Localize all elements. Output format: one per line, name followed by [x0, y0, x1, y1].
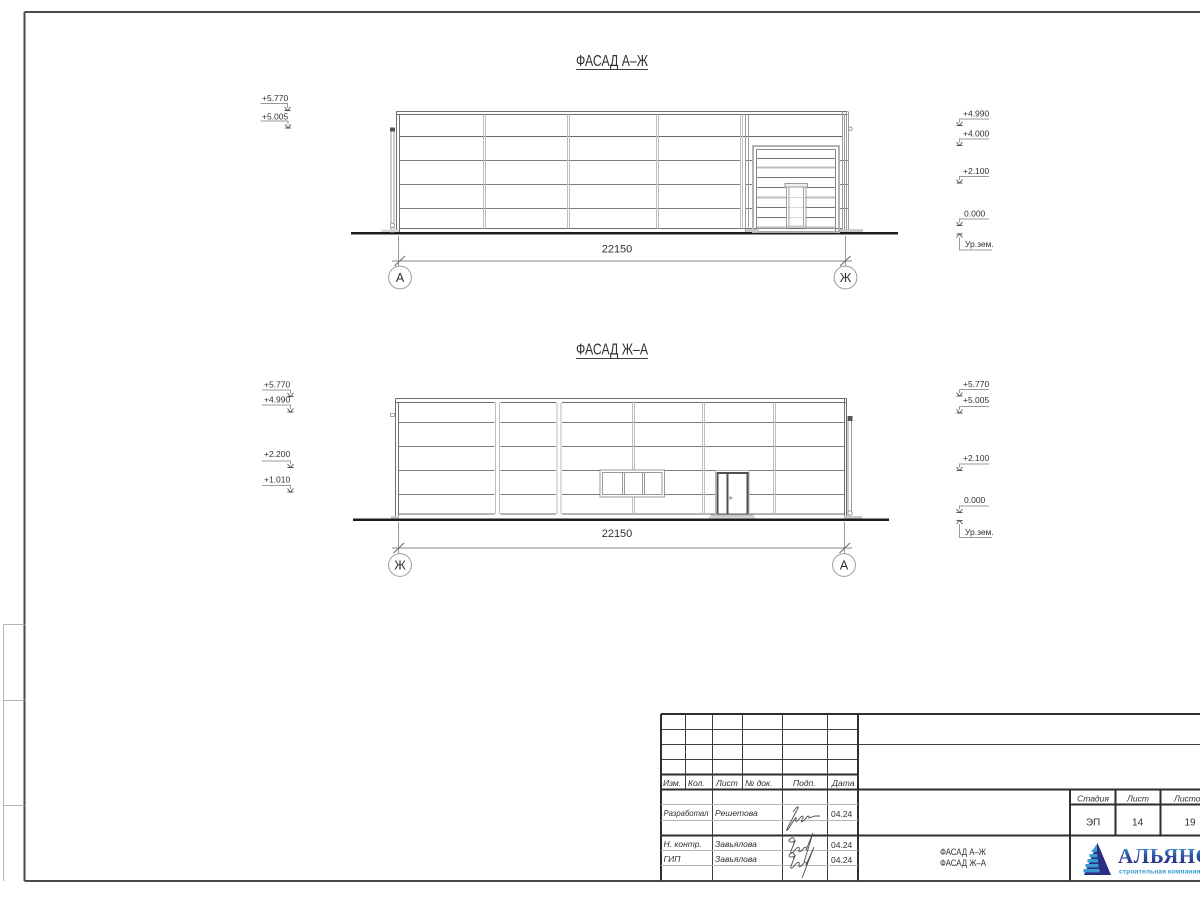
svg-text:+2.100: +2.100 [963, 453, 990, 463]
svg-text:04.24: 04.24 [831, 840, 853, 850]
svg-text:Ж: Ж [840, 271, 852, 285]
svg-text:Подп.: Подп. [793, 778, 816, 788]
svg-text:Решетова: Решетова [715, 808, 758, 818]
svg-text:АЛЬЯНС: АЛЬЯНС [1118, 844, 1200, 868]
svg-text:ГИП: ГИП [664, 854, 682, 864]
svg-text:Ур.зем.: Ур.зем. [965, 239, 994, 249]
svg-text:+5.770: +5.770 [963, 379, 990, 389]
svg-text:ФАСАД Ж–А: ФАСАД Ж–А [940, 858, 987, 869]
svg-text:Лист: Лист [715, 778, 738, 788]
svg-text:+5.005: +5.005 [963, 395, 990, 405]
svg-text:+4.990: +4.990 [264, 395, 291, 405]
svg-text:Дата: Дата [831, 778, 855, 788]
svg-text:Изм.: Изм. [663, 778, 681, 788]
svg-text:ФАСАД А–Ж: ФАСАД А–Ж [576, 53, 648, 70]
svg-text:ЭП: ЭП [1086, 818, 1100, 829]
svg-text:22150: 22150 [602, 244, 633, 256]
svg-text:+2.100: +2.100 [963, 166, 990, 176]
svg-text:А: А [840, 559, 849, 573]
svg-text:ФАСАД Ж–А: ФАСАД Ж–А [576, 342, 648, 359]
svg-text:+5.005: +5.005 [262, 112, 289, 122]
svg-text:№ док.: № док. [745, 778, 772, 788]
svg-text:Лист: Лист [1126, 794, 1149, 804]
svg-text:Н. контр.: Н. контр. [664, 839, 702, 849]
svg-text:Разработал: Разработал [664, 808, 709, 818]
svg-text:04.24: 04.24 [831, 855, 853, 865]
svg-text:Завьялова: Завьялова [715, 854, 757, 864]
svg-text:14: 14 [1132, 818, 1144, 829]
svg-text:Кол.: Кол. [688, 778, 705, 788]
svg-text:0.000: 0.000 [964, 209, 986, 219]
svg-text:+4.000: +4.000 [963, 129, 990, 139]
svg-text:Листов: Листов [1173, 794, 1200, 804]
svg-text:А: А [396, 271, 405, 285]
svg-text:строительная компания: строительная компания [1119, 869, 1200, 876]
svg-text:+2.200: +2.200 [264, 449, 291, 459]
svg-text:0.000: 0.000 [964, 495, 986, 505]
svg-text:Ж: Ж [394, 559, 406, 573]
svg-text:04.24: 04.24 [831, 809, 853, 819]
svg-text:Завьялова: Завьялова [715, 839, 757, 849]
svg-text:19: 19 [1184, 818, 1196, 829]
svg-text:+5.770: +5.770 [262, 93, 289, 103]
svg-text:22150: 22150 [602, 528, 633, 540]
svg-text:+4.990: +4.990 [963, 109, 990, 119]
svg-text:+1.010: +1.010 [264, 475, 291, 485]
svg-text:Ур.зем.: Ур.зем. [965, 527, 994, 537]
svg-text:Стадия: Стадия [1077, 794, 1109, 804]
svg-text:ФАСАД А–Ж: ФАСАД А–Ж [940, 847, 986, 858]
svg-text:+5.770: +5.770 [264, 380, 291, 390]
